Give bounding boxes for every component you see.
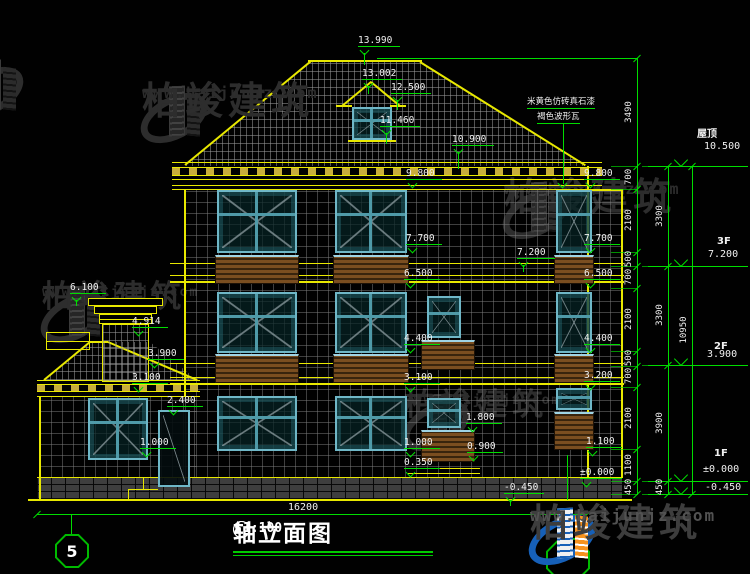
logo-tower2-icon xyxy=(3,67,16,110)
elevation-value: 1.000 xyxy=(404,438,433,448)
extension-line xyxy=(611,189,637,190)
dimension-value: 700 xyxy=(624,169,634,185)
dimension-value: 3300 xyxy=(655,205,665,227)
floor-elevation-value: -0.450 xyxy=(705,482,741,493)
elevation-value: 3.200 xyxy=(584,371,613,381)
elevation-value: 9.800 xyxy=(406,169,435,179)
dimension-line xyxy=(692,166,693,495)
elevation-stem xyxy=(76,300,77,306)
window-transom xyxy=(429,409,459,412)
elevation-value: 1.100 xyxy=(586,437,615,447)
flower-box xyxy=(215,255,299,284)
elevation-value: 4.400 xyxy=(404,334,433,344)
elevation-value: 4.400 xyxy=(584,334,613,344)
window-mullion xyxy=(255,398,258,449)
dimension-line xyxy=(637,58,638,495)
elevation-value: 3.900 xyxy=(148,349,177,359)
bottom-dimension-line xyxy=(37,514,587,515)
floor-label: 1F xyxy=(714,448,728,459)
floor-level-line xyxy=(648,266,748,267)
dimension-value: 500 xyxy=(624,350,634,366)
level-triangle-icon xyxy=(674,352,688,366)
annex-left-wall-line xyxy=(39,397,41,500)
window-transom xyxy=(558,396,590,399)
watermark-url: www.baijunjz.com xyxy=(530,508,716,524)
elevation-stem xyxy=(397,100,398,110)
window-transom xyxy=(558,315,590,318)
elevation-value: 7.700 xyxy=(584,234,613,244)
title-scale: 1:100 xyxy=(243,521,282,536)
dimension-value: 700 xyxy=(624,269,634,285)
elevation-value: 4.914 xyxy=(132,317,161,327)
elevation-value: 0.900 xyxy=(467,442,496,452)
flower-box xyxy=(333,354,409,383)
flower-box xyxy=(215,354,299,383)
floor-label: 屋顶 xyxy=(697,125,717,140)
watermark-url: www.baijunjz.com xyxy=(142,86,319,101)
entrance-stoop xyxy=(408,468,480,478)
floor-level-line xyxy=(648,365,748,366)
chimney-cap-plate xyxy=(88,298,163,306)
window-mullion xyxy=(116,400,119,458)
elevation-stem xyxy=(364,53,365,65)
window xyxy=(335,292,407,353)
elevation-value: 0.350 xyxy=(404,458,433,468)
stoop-line xyxy=(408,473,480,474)
elevation-value: 13.990 xyxy=(358,36,392,46)
window-transom xyxy=(219,213,295,216)
window-transom xyxy=(337,416,405,419)
floor-elevation-value: 10.500 xyxy=(704,141,740,152)
dimension-value: 450 xyxy=(655,479,665,495)
title-underline-thick xyxy=(233,551,433,553)
pier-right-line xyxy=(621,190,623,478)
material-note-line1: 米黄色仿砖真石漆 xyxy=(527,95,595,109)
window-mullion xyxy=(369,294,372,351)
floor-elevation-value: 7.200 xyxy=(708,249,738,260)
elevation-stem xyxy=(368,86,369,94)
material-note-line2: 褐色波形瓦 xyxy=(537,110,580,124)
annex-step-lower xyxy=(128,489,158,500)
dentil-strip xyxy=(37,384,200,392)
elevation-value: 6.500 xyxy=(404,269,433,279)
note-leader-line xyxy=(563,124,564,184)
window-mullion xyxy=(255,294,258,351)
level-triangle-icon xyxy=(674,153,688,167)
window xyxy=(427,296,461,338)
elevation-value: -0.450 xyxy=(504,483,538,493)
window-transom xyxy=(219,416,295,419)
logo-tower-icon xyxy=(0,60,1,111)
pier-leader-line xyxy=(567,455,568,500)
elevation-value: 7.700 xyxy=(406,234,435,244)
elevation-value: 1.800 xyxy=(466,413,495,423)
eaves-cornice xyxy=(172,162,602,190)
window-transom xyxy=(429,312,459,315)
parapet-line xyxy=(47,341,89,342)
window-mullion xyxy=(370,109,373,138)
axis-bubble-number: 5 xyxy=(55,534,89,568)
window-transom xyxy=(558,213,590,216)
chimney-cap-band xyxy=(94,306,157,314)
dimension-value: 2100 xyxy=(624,308,634,330)
elevation-value: 3.100 xyxy=(404,373,433,383)
level-triangle-icon xyxy=(674,253,688,267)
elevation-stem xyxy=(386,133,387,144)
window-transom xyxy=(337,315,405,318)
elevation-value: 9.800 xyxy=(584,169,613,179)
total-width-dimension: 16200 xyxy=(288,502,318,513)
dimension-value: 450 xyxy=(624,479,634,495)
dormer-eave-right xyxy=(390,105,406,107)
window-mullion xyxy=(369,192,372,251)
floor-label: 3F xyxy=(717,236,731,247)
axis-stem-line xyxy=(71,514,72,535)
window-mullion xyxy=(255,192,258,251)
elevation-value: 3.100 xyxy=(132,373,161,383)
annex-step-upper xyxy=(143,477,158,489)
elevation-stem xyxy=(523,265,524,272)
dimension-value: 2100 xyxy=(624,407,634,429)
dimension-value: 700 xyxy=(624,368,634,384)
elevation-value: 11.460 xyxy=(380,116,414,126)
window xyxy=(217,292,297,353)
window-mullion xyxy=(369,398,372,449)
elevation-stem xyxy=(510,500,511,506)
window-transom xyxy=(90,421,146,424)
window xyxy=(556,388,592,410)
window-transom xyxy=(337,213,405,216)
elevation-value: 1.000 xyxy=(140,438,169,448)
level-triangle-icon xyxy=(674,481,688,495)
window xyxy=(217,190,297,253)
window xyxy=(335,190,407,253)
extension-line xyxy=(611,366,637,367)
dimension-value: 10950 xyxy=(679,316,689,343)
floor-elevation-value: 3.900 xyxy=(707,349,737,360)
elevation-value: 6.100 xyxy=(70,283,99,293)
dormer-eave-left xyxy=(336,105,352,107)
window xyxy=(217,396,297,451)
dimension-value: 2100 xyxy=(624,209,634,231)
floor-level-line xyxy=(648,166,748,167)
watermark-logo-icon xyxy=(0,56,36,122)
elevation-value: 10.900 xyxy=(452,135,486,145)
dimension-value: 3900 xyxy=(655,412,665,434)
elevation-value: 12.500 xyxy=(391,83,425,93)
dentil-strip xyxy=(172,167,602,176)
floor-elevation-value: ±0.000 xyxy=(703,464,739,475)
window xyxy=(427,398,461,428)
elevation-value: ±0.000 xyxy=(580,468,614,478)
dimension-line xyxy=(668,166,669,495)
dormer-sill xyxy=(348,140,396,142)
extension-line xyxy=(611,387,637,388)
dimension-value: 1100 xyxy=(624,454,634,476)
extension-line xyxy=(611,449,637,450)
dimension-value: 500 xyxy=(624,251,634,267)
extension-line xyxy=(611,166,637,167)
elevation-value: 13.002 xyxy=(362,69,396,79)
elevation-value: 6.500 xyxy=(584,269,613,279)
extension-line xyxy=(611,288,637,289)
title-underline-thin xyxy=(233,555,433,556)
elevation-stem xyxy=(458,152,459,169)
elevation-value: 7.200 xyxy=(517,248,546,258)
window-transom xyxy=(219,315,295,318)
dimension-value: 3490 xyxy=(624,101,634,123)
elevation-drawing-canvas: 米黄色仿砖真石漆 褐色波形瓦 16200 5 5-1轴立面图1:100 13.9… xyxy=(0,0,750,574)
fascia-lines xyxy=(172,179,602,186)
window xyxy=(88,398,148,460)
roof-ridge-line xyxy=(308,60,422,62)
peak-level-line xyxy=(377,58,637,59)
dimension-value: 3300 xyxy=(655,304,665,326)
elevation-value: 2.400 xyxy=(167,396,196,406)
window xyxy=(335,396,407,451)
flower-box xyxy=(333,255,409,284)
